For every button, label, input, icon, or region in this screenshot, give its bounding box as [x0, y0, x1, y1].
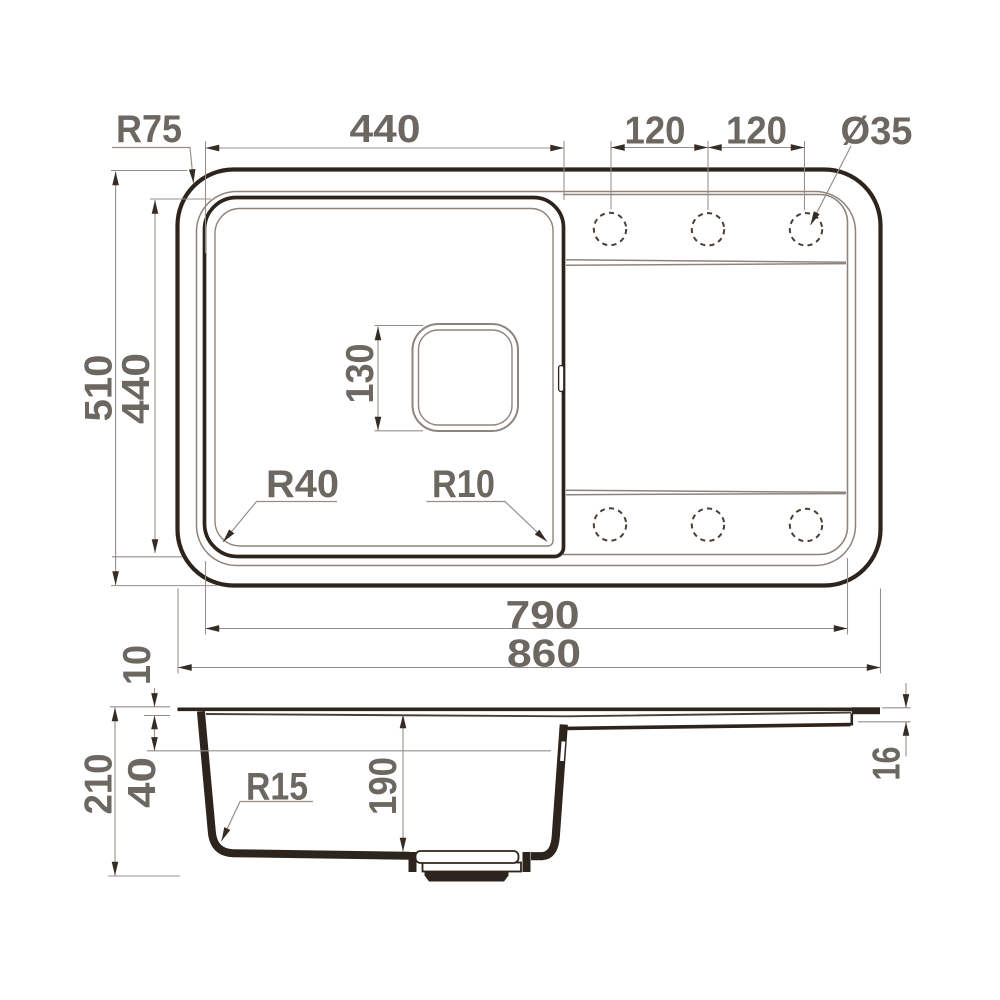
svg-text:16: 16: [866, 747, 909, 781]
svg-text:440: 440: [350, 108, 421, 151]
svg-text:190: 190: [362, 757, 405, 815]
svg-text:860: 860: [507, 633, 581, 676]
svg-text:120: 120: [625, 110, 686, 153]
svg-text:790: 790: [506, 594, 580, 637]
svg-text:440: 440: [115, 353, 158, 424]
svg-text:210: 210: [78, 754, 121, 815]
svg-text:R75: R75: [116, 108, 182, 151]
svg-text:10: 10: [116, 645, 159, 685]
svg-text:130: 130: [339, 344, 382, 404]
svg-text:R40: R40: [266, 463, 339, 506]
svg-text:120: 120: [726, 110, 787, 153]
svg-text:R10: R10: [432, 463, 495, 506]
svg-text:40: 40: [121, 757, 164, 808]
